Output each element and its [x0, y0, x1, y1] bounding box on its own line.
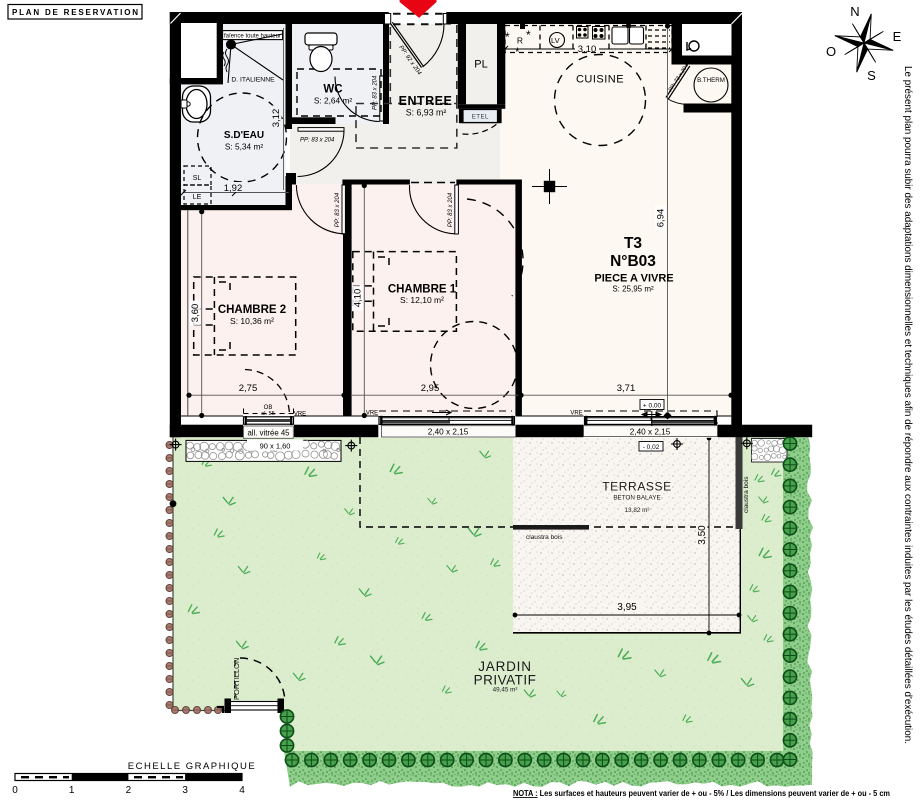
- svg-text:S: 10,36 m²: S: 10,36 m²: [230, 316, 274, 326]
- svg-text:CHAMBRE 2: CHAMBRE 2: [218, 304, 286, 316]
- svg-text:*: *: [505, 30, 510, 44]
- svg-text:PIECE A VIVRE: PIECE A VIVRE: [594, 273, 673, 285]
- svg-text:S: 6,93 m²: S: 6,93 m²: [406, 108, 447, 118]
- svg-text:0: 0: [12, 785, 18, 796]
- svg-text:*: *: [526, 28, 531, 42]
- svg-text:R: R: [517, 36, 523, 46]
- svg-text:VRE: VRE: [366, 411, 378, 417]
- svg-text:SL: SL: [193, 175, 202, 182]
- svg-text:4,10: 4,10: [353, 289, 364, 308]
- svg-text:13,82 m²: 13,82 m²: [625, 507, 650, 514]
- svg-text:90 x 1,60: 90 x 1,60: [260, 442, 291, 451]
- svg-text:3,12: 3,12: [271, 109, 282, 128]
- svg-text:LE: LE: [193, 194, 202, 201]
- svg-text:PP: 83 x 204: PP: 83 x 204: [448, 192, 454, 227]
- svg-text:ECHELLE GRAPHIQUE: ECHELLE GRAPHIQUE: [128, 761, 256, 772]
- svg-text:al. 55: al. 55: [261, 411, 275, 417]
- svg-text:6,94: 6,94: [656, 209, 667, 228]
- svg-text:S: S: [867, 68, 876, 83]
- svg-text:3: 3: [182, 785, 188, 796]
- svg-text:T3: T3: [624, 235, 642, 252]
- svg-text:- 0,02: - 0,02: [643, 444, 660, 451]
- svg-text:S: 25,95 m²: S: 25,95 m²: [612, 285, 654, 294]
- svg-text:3,95: 3,95: [617, 602, 637, 613]
- svg-text:3,60: 3,60: [190, 304, 201, 323]
- svg-text:D. ITALIENNE: D. ITALIENNE: [231, 77, 275, 84]
- svg-text:VRE: VRE: [570, 411, 582, 417]
- svg-text:claustra bois: claustra bois: [526, 534, 563, 541]
- svg-text:1,92: 1,92: [224, 183, 243, 194]
- svg-text:PP: 83 x 204: PP: 83 x 204: [373, 75, 379, 110]
- svg-text:ENTREE: ENTREE: [399, 94, 453, 108]
- svg-text:all. vitrée 45: all. vitrée 45: [247, 429, 290, 438]
- svg-text:S: 5,34 m²: S: 5,34 m²: [225, 142, 264, 152]
- svg-text:3,50: 3,50: [697, 525, 708, 545]
- svg-text:PP: 83 x 204: PP: 83 x 204: [300, 138, 335, 144]
- svg-text:O: O: [826, 44, 836, 59]
- svg-text:1: 1: [69, 785, 75, 796]
- svg-text:3,71: 3,71: [617, 383, 636, 394]
- svg-text:49,45 m²: 49,45 m²: [493, 687, 518, 694]
- svg-text:N: N: [850, 4, 859, 19]
- svg-text:4: 4: [239, 785, 245, 796]
- svg-text:PP: 83 x 204: PP: 83 x 204: [335, 192, 341, 227]
- svg-text:NOTA : Les surfaces et hauteur: NOTA : Les surfaces et hauteurs peuvent …: [513, 788, 890, 798]
- svg-text:LV: LV: [551, 36, 560, 45]
- svg-text:S.D'EAU: S.D'EAU: [224, 130, 264, 141]
- svg-text:3,10: 3,10: [578, 44, 597, 55]
- svg-text:2,95: 2,95: [421, 383, 440, 394]
- svg-text:+ 0,00: + 0,00: [643, 403, 662, 410]
- svg-text:PORTILLON: PORTILLON: [232, 658, 241, 700]
- svg-text:faïence toute hauteur: faïence toute hauteur: [224, 34, 281, 40]
- svg-text:BETON BALAYE: BETON BALAYE: [613, 495, 660, 502]
- svg-text:PLAN DE RESERVATION: PLAN DE RESERVATION: [12, 8, 138, 17]
- svg-text:B.THERM: B.THERM: [697, 77, 725, 84]
- svg-text:PL: PL: [474, 59, 487, 71]
- svg-text:2,40 x 2,15: 2,40 x 2,15: [428, 428, 469, 437]
- svg-text:PRIVATIF: PRIVATIF: [474, 673, 537, 688]
- svg-text:N°B03: N°B03: [610, 253, 656, 270]
- svg-text:E: E: [893, 29, 902, 44]
- svg-text:CHAMBRE 1: CHAMBRE 1: [388, 284, 457, 296]
- svg-text:S: 2,64 m²: S: 2,64 m²: [314, 96, 353, 106]
- svg-text:*: *: [515, 45, 520, 59]
- svg-text:Le présent plan pourra subir d: Le présent plan pourra subir des adaptat…: [902, 66, 913, 744]
- svg-text:CUISINE: CUISINE: [576, 74, 624, 86]
- svg-text:VRE: VRE: [294, 412, 306, 418]
- svg-text:2: 2: [126, 785, 132, 796]
- svg-text:claustra bois: claustra bois: [743, 476, 750, 513]
- svg-text:TERRASSE: TERRASSE: [602, 480, 671, 494]
- svg-text:2,40 x 2,15: 2,40 x 2,15: [630, 428, 671, 437]
- svg-text:2,75: 2,75: [239, 383, 258, 394]
- svg-text:WC: WC: [323, 84, 342, 96]
- svg-text:ETEL: ETEL: [472, 114, 489, 121]
- svg-text:S: 12,10 m²: S: 12,10 m²: [400, 295, 444, 305]
